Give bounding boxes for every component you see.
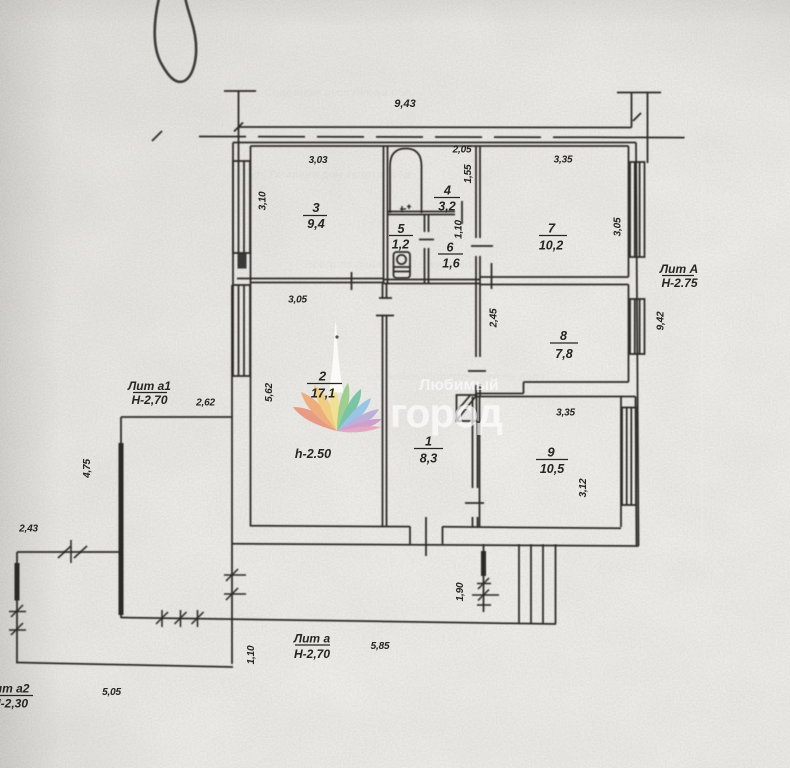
svg-text:Всего по данным обследования: Всего по данным обследования [305, 259, 482, 271]
svg-text:5,05: 5,05 [102, 687, 121, 698]
svg-text:10,2: 10,2 [539, 239, 563, 253]
svg-text:9,43: 9,43 [394, 98, 415, 110]
svg-text:2,05: 2,05 [452, 145, 472, 156]
svg-text:Н-2,70: Н-2,70 [294, 647, 330, 661]
svg-text:Лит а: Лит а [293, 632, 331, 646]
svg-text:10,5: 10,5 [540, 462, 565, 476]
svg-text:8,3: 8,3 [420, 452, 437, 466]
svg-text:9: 9 [547, 445, 555, 460]
svg-text:7: 7 [548, 221, 556, 236]
svg-text:h-2.50: h-2.50 [295, 447, 331, 461]
svg-text:9,42: 9,42 [656, 311, 667, 330]
svg-text:Лит а1: Лит а1 [127, 379, 171, 393]
svg-text:служебные примечания по делу: служебные примечания по делу [368, 371, 546, 383]
svg-text:1,10: 1,10 [246, 645, 257, 664]
svg-text:1,10: 1,10 [454, 220, 465, 239]
svg-text:1,90: 1,90 [455, 582, 466, 601]
svg-text:2,62: 2,62 [195, 398, 215, 409]
svg-text:г. Советская республика обл: г. Советская республика обл [255, 87, 411, 99]
svg-text:5,62: 5,62 [264, 383, 275, 402]
svg-text:17,1: 17,1 [311, 387, 335, 401]
svg-text:3,35: 3,35 [554, 155, 573, 166]
svg-text:Н-2,30: Н-2,30 [0, 697, 28, 711]
svg-text:3,35: 3,35 [556, 408, 575, 419]
svg-text:9,4: 9,4 [307, 217, 324, 231]
svg-text:2,45: 2,45 [489, 308, 500, 328]
svg-text:5: 5 [398, 222, 406, 236]
svg-text:Н-2,70: Н-2,70 [131, 393, 167, 407]
svg-text:ул. Гагарина дом квартира №: ул. Гагарина дом квартира № [250, 169, 411, 181]
svg-text:1,55: 1,55 [463, 164, 474, 183]
svg-text:2: 2 [318, 369, 327, 384]
svg-text:8: 8 [560, 329, 567, 343]
svg-text:Лит А: Лит А [659, 262, 698, 276]
svg-text:4: 4 [443, 184, 451, 198]
svg-text:Н-2.75: Н-2.75 [661, 276, 697, 290]
svg-text:1,2: 1,2 [392, 238, 409, 252]
svg-text:1: 1 [425, 435, 432, 449]
svg-text:2,43: 2,43 [18, 524, 38, 535]
svg-text:город: город [390, 390, 503, 436]
svg-text:3,10: 3,10 [258, 191, 269, 210]
svg-text:3,2: 3,2 [438, 200, 455, 214]
svg-text:3: 3 [312, 200, 320, 215]
svg-text:3,05: 3,05 [613, 217, 624, 236]
svg-text:7,8: 7,8 [555, 347, 572, 361]
svg-text:3,12: 3,12 [578, 478, 589, 497]
svg-text:Лит а2: Лит а2 [0, 682, 30, 696]
svg-text:4,75: 4,75 [82, 459, 93, 479]
svg-text:3,05: 3,05 [288, 295, 307, 306]
svg-text:5,85: 5,85 [371, 641, 390, 652]
svg-text:3,03: 3,03 [309, 155, 328, 166]
svg-text:6: 6 [447, 241, 455, 255]
